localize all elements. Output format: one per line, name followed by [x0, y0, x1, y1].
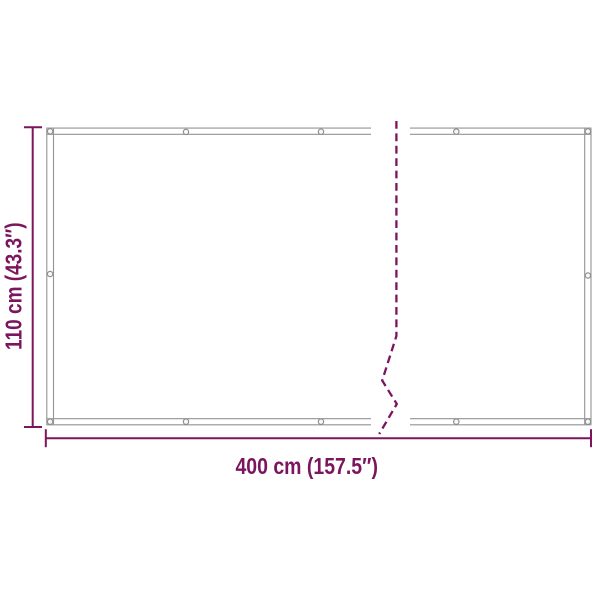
- svg-text:400 cm (157.5″): 400 cm (157.5″): [235, 453, 378, 479]
- svg-text:110 cm (43.3″): 110 cm (43.3″): [1, 222, 27, 350]
